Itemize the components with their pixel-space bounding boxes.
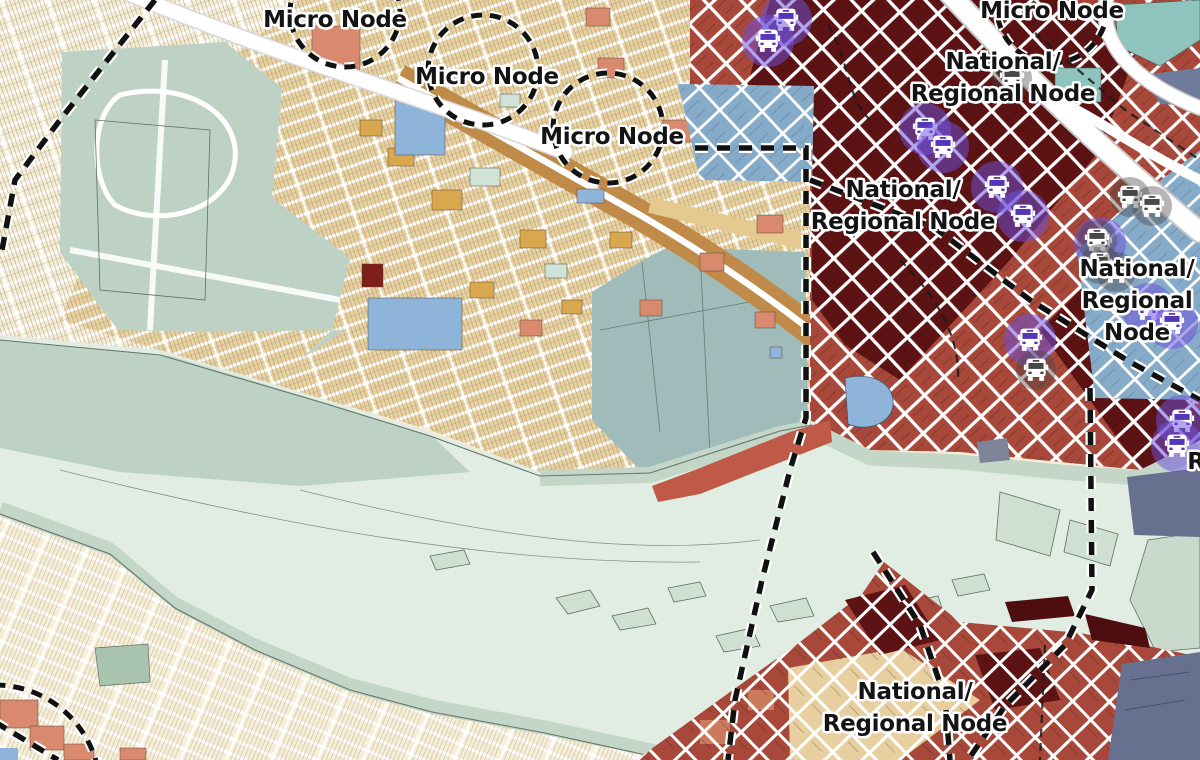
bus-icon[interactable] bbox=[1023, 357, 1049, 383]
map-viewport[interactable]: Micro Node Micro Node Micro Node Micro N… bbox=[0, 0, 1200, 760]
bus-icon[interactable] bbox=[1103, 259, 1129, 285]
bus-icon[interactable] bbox=[1010, 203, 1036, 229]
bus-icon[interactable] bbox=[1164, 433, 1190, 459]
bus-icon[interactable] bbox=[1159, 310, 1185, 336]
bus-icon[interactable] bbox=[1017, 327, 1043, 353]
markers-layer bbox=[0, 0, 1200, 760]
bus-icon[interactable] bbox=[1139, 193, 1165, 219]
bus-icon[interactable] bbox=[999, 65, 1025, 91]
bus-icon[interactable] bbox=[930, 134, 956, 160]
bus-icon[interactable] bbox=[755, 28, 781, 54]
